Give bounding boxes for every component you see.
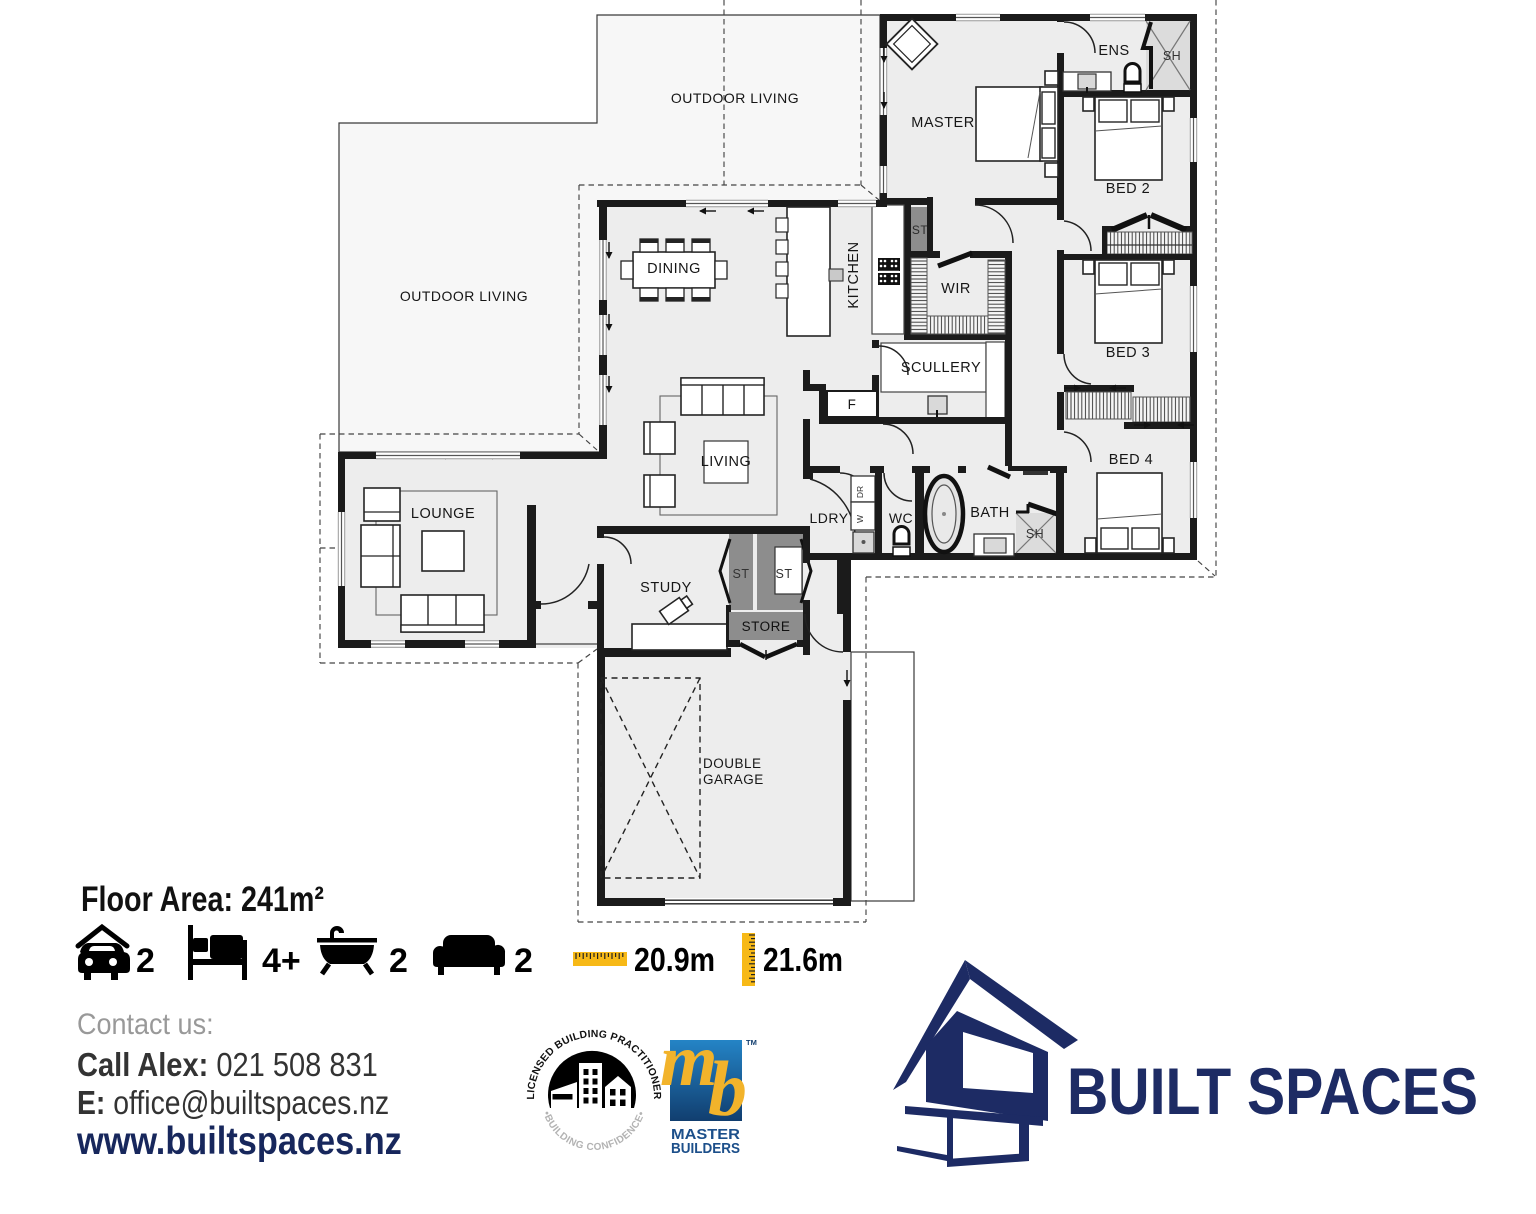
svg-text:OUTDOOR LIVING: OUTDOOR LIVING — [400, 288, 528, 304]
svg-text:LOUNGE: LOUNGE — [411, 506, 475, 522]
svg-text:BUILT SPACES: BUILT SPACES — [1067, 1054, 1478, 1128]
svg-text:WIR: WIR — [941, 281, 971, 297]
svg-text:GARAGE: GARAGE — [703, 772, 764, 787]
svg-text:DOUBLE: DOUBLE — [703, 756, 762, 771]
svg-text:2: 2 — [389, 942, 408, 980]
svg-text:LDRY: LDRY — [809, 510, 848, 526]
svg-text:DR: DR — [855, 486, 865, 498]
svg-text:KITCHEN: KITCHEN — [846, 241, 862, 308]
svg-text:TM: TM — [746, 1038, 757, 1047]
svg-text:•BUILDING CONFIDENCE•: •BUILDING CONFIDENCE• — [540, 1110, 647, 1153]
svg-text:2: 2 — [136, 942, 155, 980]
svg-text:F: F — [848, 397, 857, 412]
svg-text:21.6m: 21.6m — [763, 941, 843, 978]
svg-text:BUILDERS: BUILDERS — [671, 1141, 740, 1157]
svg-text:DINING: DINING — [647, 261, 701, 277]
svg-text:ST: ST — [912, 223, 929, 237]
svg-text:BED 2: BED 2 — [1106, 181, 1150, 197]
svg-text:ST: ST — [776, 567, 793, 581]
svg-text:MASTER: MASTER — [911, 115, 974, 131]
svg-text:b: b — [708, 1045, 747, 1132]
svg-text:LIVING: LIVING — [701, 454, 752, 470]
svg-text:4+: 4+ — [262, 942, 301, 980]
svg-text:SCULLERY: SCULLERY — [901, 360, 981, 376]
svg-text:SH: SH — [1163, 49, 1181, 63]
svg-text:WC: WC — [889, 510, 913, 526]
svg-text:W: W — [855, 515, 865, 523]
svg-text:BED 4: BED 4 — [1109, 452, 1153, 468]
svg-text:20.9m: 20.9m — [634, 941, 715, 978]
svg-text:ENS: ENS — [1098, 43, 1129, 59]
svg-text:BED 3: BED 3 — [1106, 345, 1150, 361]
svg-text:ST: ST — [733, 567, 750, 581]
svg-text:STUDY: STUDY — [640, 580, 692, 596]
svg-text:2: 2 — [514, 942, 533, 980]
svg-text:BATH: BATH — [970, 505, 1010, 521]
svg-text:SH: SH — [1026, 527, 1044, 541]
svg-text:STORE: STORE — [742, 619, 791, 634]
svg-text:OUTDOOR LIVING: OUTDOOR LIVING — [671, 90, 799, 106]
